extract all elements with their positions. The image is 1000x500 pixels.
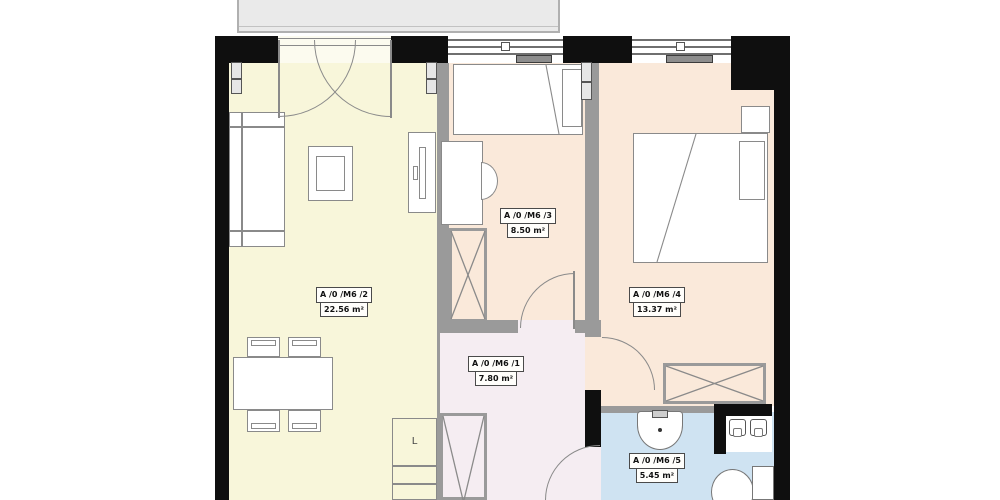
radiator: [516, 55, 552, 63]
partition-wall: [585, 63, 599, 333]
pillow: [739, 141, 765, 200]
door-leaf: [390, 40, 392, 118]
chair: [288, 410, 321, 432]
toilet-cistern: [752, 466, 774, 500]
wall-radiator-icon: [581, 62, 592, 100]
drain-dot: [658, 428, 662, 432]
nightstand: [741, 106, 770, 133]
pillow: [562, 69, 582, 127]
room-label-living: A /0 /M6 /2 22.56 m²: [316, 287, 372, 317]
washer-icon-inner: [754, 428, 763, 437]
floor-plan: L A /0 /: [0, 0, 1000, 500]
room-code: A /0 /M6 /1: [468, 356, 524, 372]
wall-segment: [215, 36, 229, 500]
wall-segment: [391, 36, 448, 63]
dining-table: [233, 357, 333, 410]
room-label-bedroom-large: A /0 /M6 /4 13.37 m²: [629, 287, 685, 317]
window-mullion: [501, 42, 510, 51]
window-mullion: [676, 42, 685, 51]
tv-stand: [413, 166, 418, 180]
room-label-hall: A /0 /M6 /1 7.80 m²: [468, 356, 524, 386]
wall-segment: [563, 36, 632, 63]
washer-icon-inner: [733, 428, 742, 437]
kitchen-unit-line: [393, 465, 436, 467]
room-code: A /0 /M6 /2: [316, 287, 372, 303]
desk: [441, 141, 483, 225]
room-area: 8.50 m²: [507, 223, 549, 239]
faucet: [652, 410, 668, 418]
chair: [288, 337, 321, 357]
room-code: A /0 /M6 /4: [629, 287, 685, 303]
room-code: A /0 /M6 /3: [500, 208, 556, 224]
chair: [247, 410, 280, 432]
chair: [247, 337, 280, 357]
room-area: 5.45 m²: [636, 468, 678, 484]
room-area: 7.80 m²: [475, 371, 517, 387]
wardrobe: [449, 228, 487, 322]
coffee-table-top: [316, 156, 345, 191]
partition-wall: [575, 320, 601, 333]
wardrobe: [440, 413, 487, 500]
sofa: [229, 112, 285, 247]
room-area: 22.56 m²: [320, 302, 368, 318]
door-leaf: [573, 271, 575, 329]
room-code: A /0 /M6 /5: [629, 453, 685, 469]
wall-segment: [215, 36, 278, 63]
wall-radiator-icon: [426, 62, 437, 94]
door-opening: [585, 337, 601, 390]
kitchen-unit-line: [393, 483, 436, 485]
balcony: [237, 0, 560, 33]
sofa-line: [230, 230, 284, 232]
wall-segment: [714, 404, 726, 454]
wall-radiator-icon: [231, 62, 242, 94]
door-leaf: [278, 40, 280, 118]
fridge-label: L: [392, 437, 437, 447]
room-label-bathroom: A /0 /M6 /5 5.45 m²: [629, 453, 685, 483]
tv-icon: [419, 147, 426, 199]
wall-segment: [774, 36, 790, 500]
wardrobe: [663, 363, 766, 404]
room-area: 13.37 m²: [633, 302, 681, 318]
sofa-line: [230, 126, 284, 128]
room-label-bedroom-small: A /0 /M6 /3 8.50 m²: [500, 208, 556, 238]
wall-segment: [585, 390, 601, 447]
sofa-line: [241, 113, 243, 246]
kitchen-unit: [392, 418, 437, 500]
radiator: [666, 55, 713, 63]
